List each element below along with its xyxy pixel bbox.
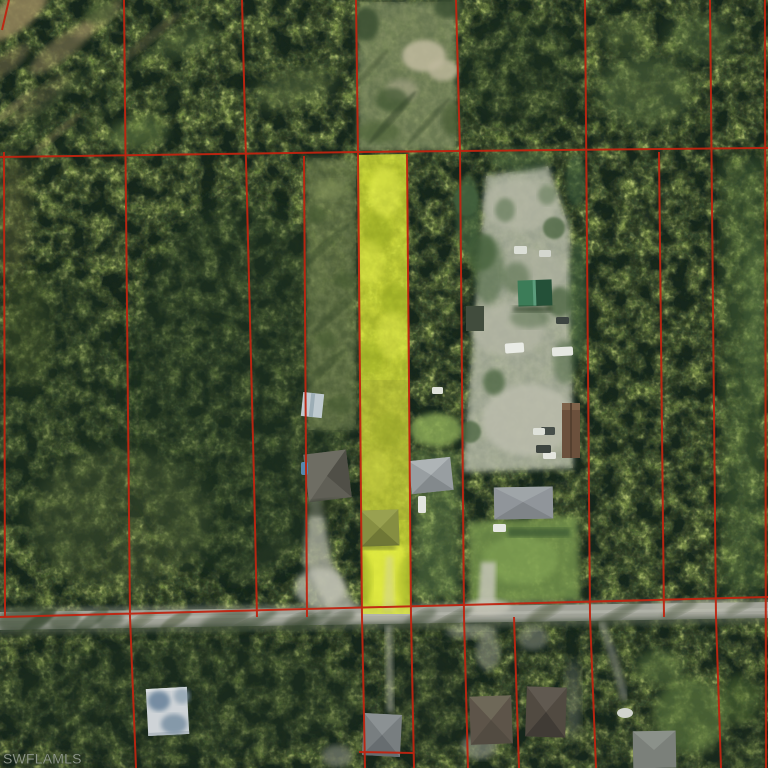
svg-text:SWFLAMLS: SWFLAMLS <box>3 751 82 767</box>
